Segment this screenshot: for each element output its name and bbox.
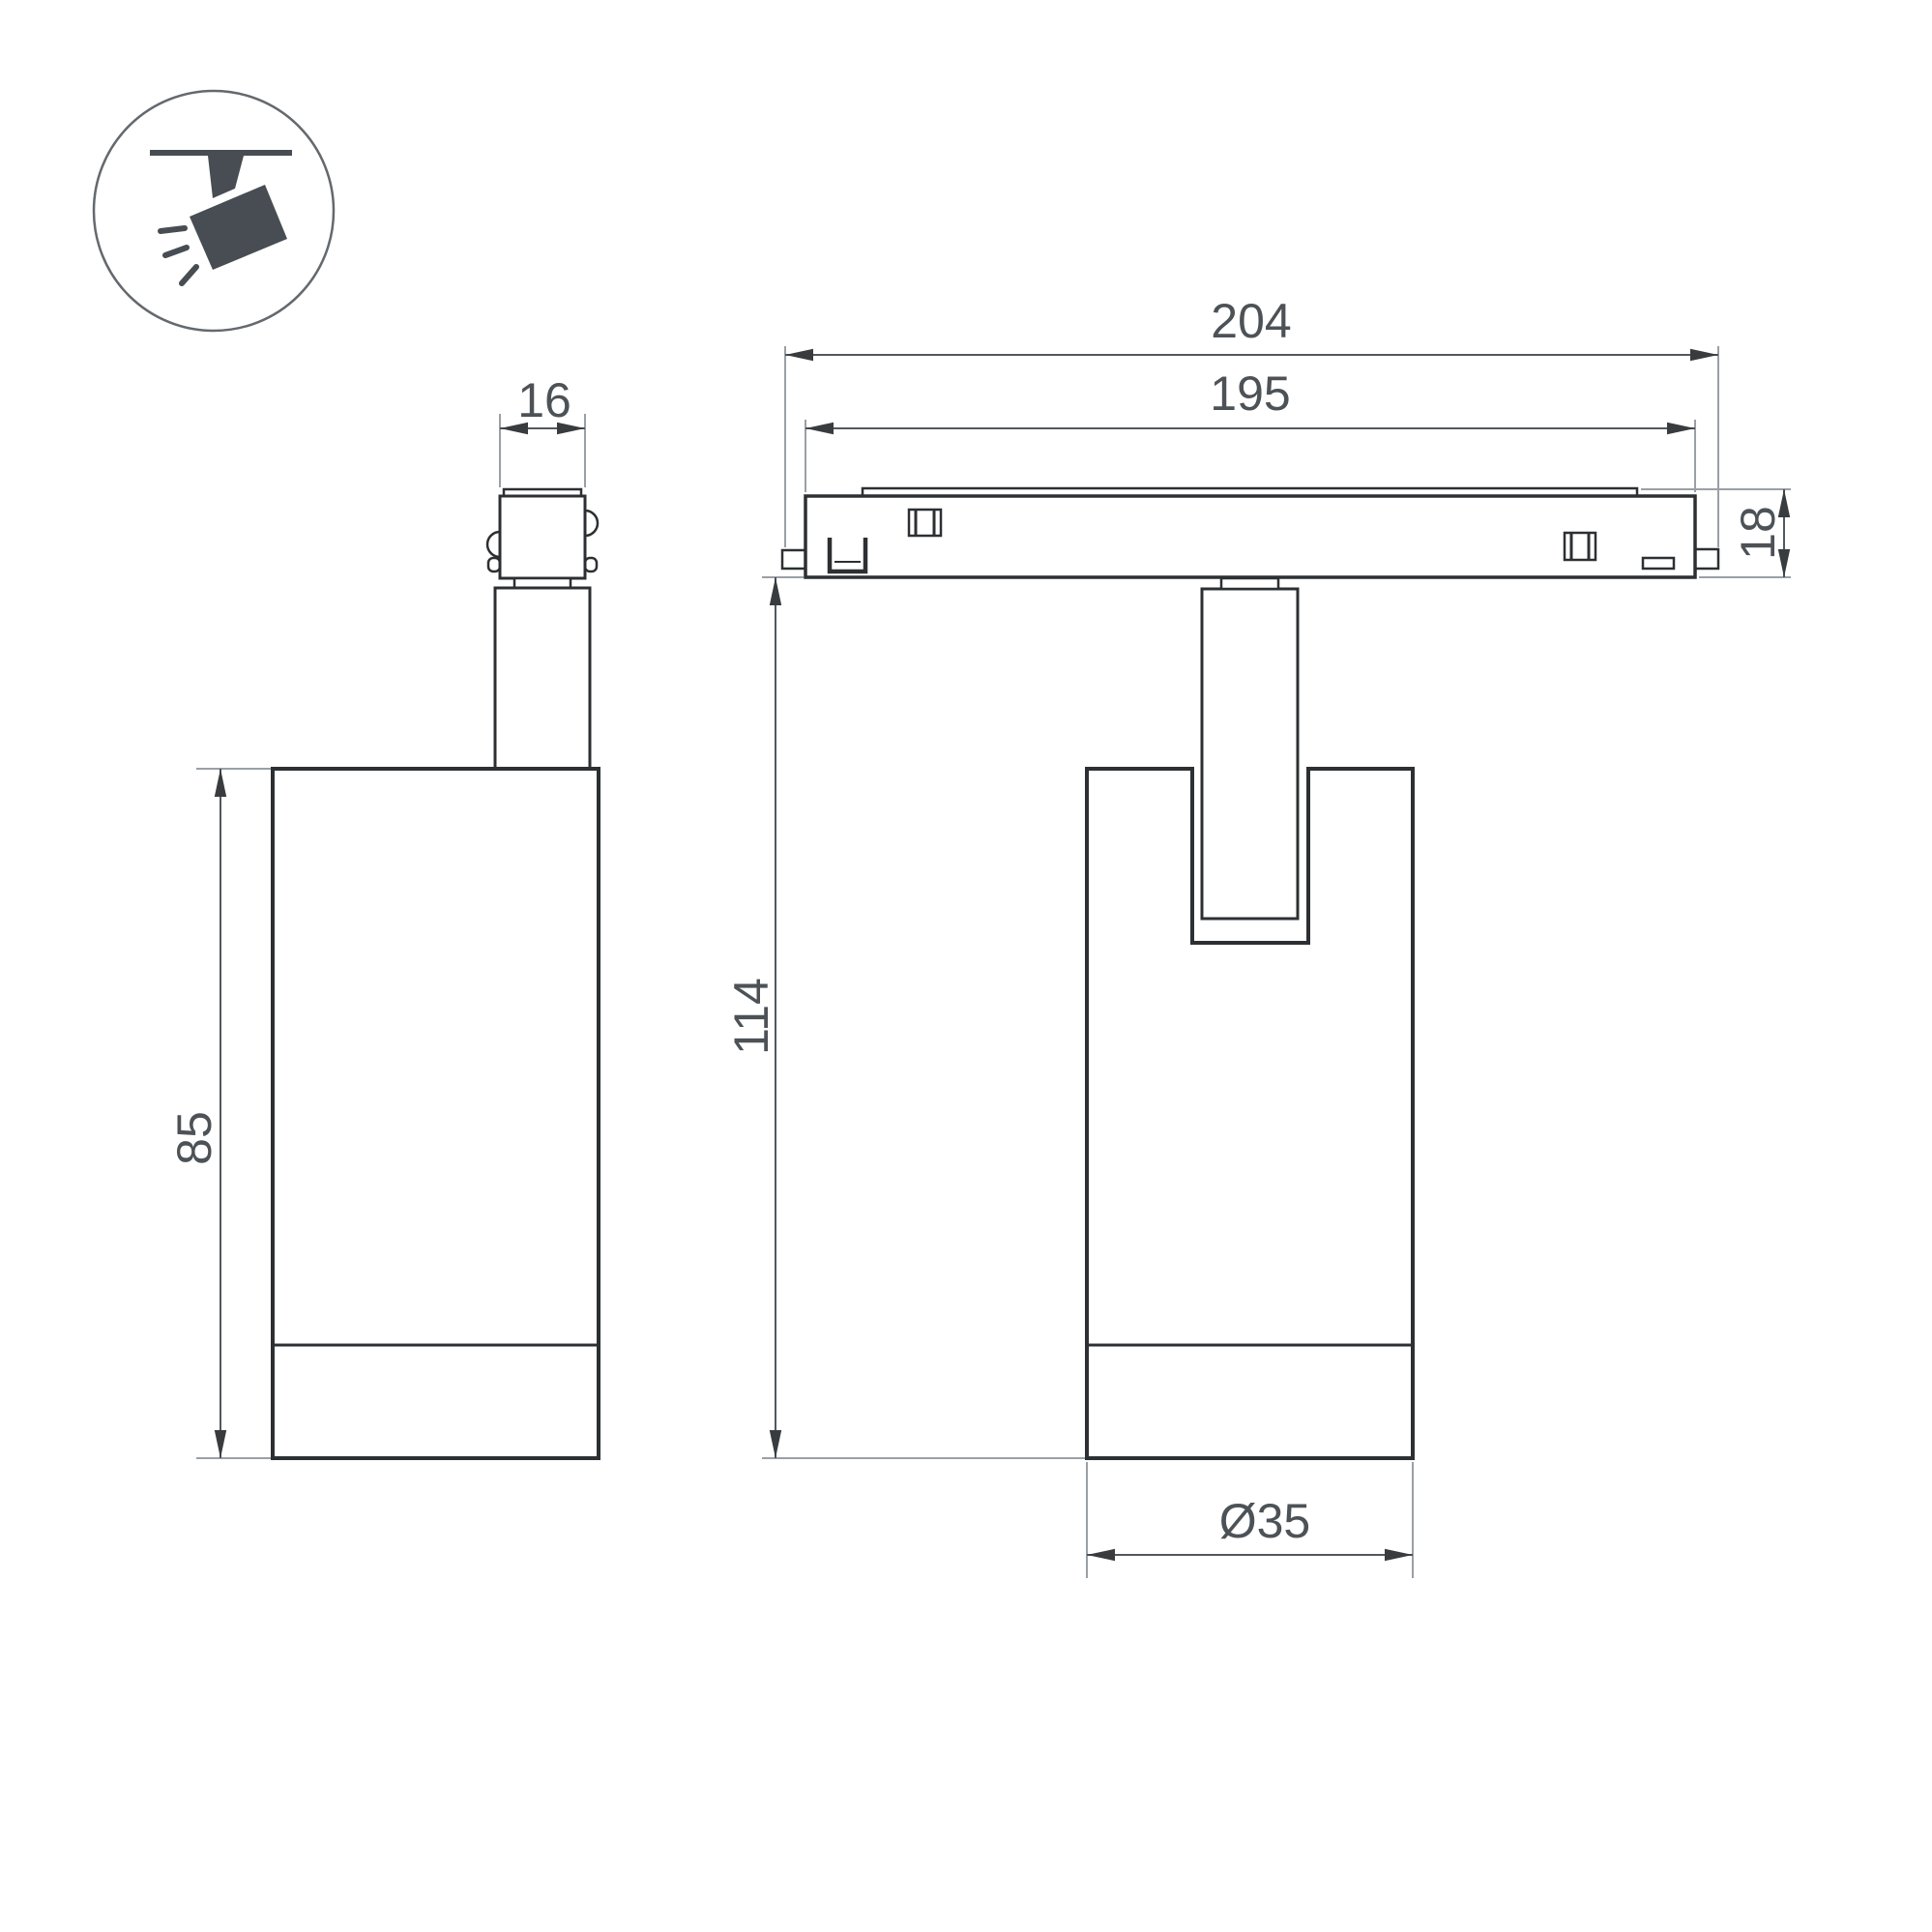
dim-label-body-diameter: Ø35 (1219, 1494, 1311, 1548)
connector-lug-left (488, 558, 500, 571)
arrowhead-right (1385, 1549, 1413, 1561)
track-end-tab-right (1695, 549, 1718, 569)
arrowhead-top (215, 769, 226, 797)
track-contact-right (1565, 533, 1595, 560)
track-bar (782, 488, 1718, 577)
dimension-body-height: 85 (167, 769, 271, 1458)
arrowhead-left (805, 423, 834, 434)
side-stem-arm (495, 588, 590, 769)
connector-ear-right (585, 511, 598, 536)
drawing-canvas: 16 85 (0, 0, 1932, 1932)
dim-label-track-height: 18 (1731, 506, 1785, 560)
dim-label-body-height: 85 (167, 1111, 221, 1165)
arrowhead-bottom (215, 1430, 226, 1458)
arrowhead-left (785, 349, 813, 361)
arrowhead-top (770, 577, 781, 605)
connector-ear-left (487, 532, 500, 557)
icon-track-bar (150, 150, 292, 156)
technical-drawing: 16 85 (0, 0, 1932, 1932)
track-slot-right (1643, 558, 1674, 569)
connector-box (500, 496, 585, 578)
arrowhead-right (1667, 423, 1695, 434)
front-view: 204 195 (724, 294, 1791, 1578)
dim-label-track-outer: 204 (1211, 294, 1291, 348)
dim-label-overall-height: 114 (724, 978, 778, 1055)
arrowhead-left (1087, 1549, 1115, 1561)
legend-icon (94, 91, 334, 331)
dim-label-connector-width: 16 (517, 373, 571, 427)
dim-label-track-inner: 195 (1210, 366, 1290, 421)
arrowhead-right (1690, 349, 1718, 361)
connector-lug-right (585, 558, 597, 571)
dimension-track-inner-length: 195 (805, 366, 1695, 492)
arrowhead-bottom (770, 1430, 781, 1458)
side-view: 16 85 (167, 373, 599, 1458)
side-lamp-body (273, 769, 599, 1458)
side-connector (487, 489, 598, 588)
track-contact-left (909, 510, 941, 536)
icon-light-ray-1 (161, 228, 185, 231)
dimension-overall-height: 114 (724, 577, 1085, 1458)
dimension-connector-width: 16 (500, 373, 585, 487)
dimension-body-diameter: Ø35 (1087, 1462, 1413, 1578)
front-stem-neck (1221, 578, 1278, 589)
front-stem-arm (1202, 589, 1298, 919)
track-end-tab-left (782, 550, 805, 569)
